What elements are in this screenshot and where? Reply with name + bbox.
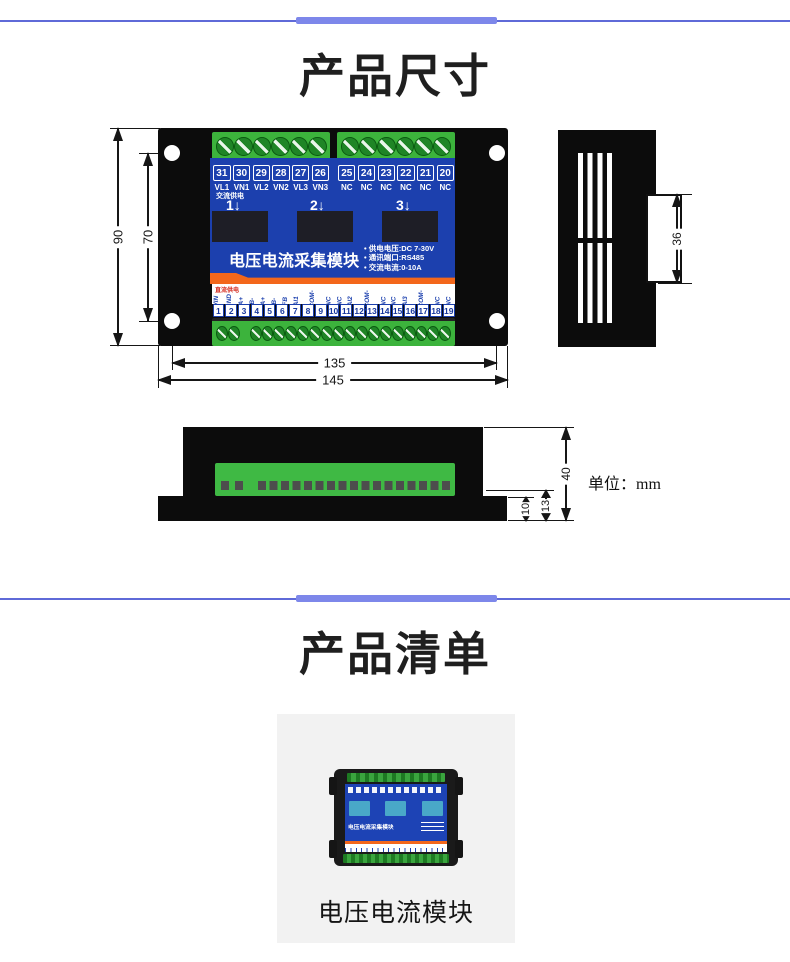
terminal-label-cell: NC bbox=[335, 286, 346, 304]
terminal-number: 30 bbox=[233, 165, 250, 181]
terminal-number: 16 bbox=[404, 304, 416, 317]
screw-icon bbox=[414, 137, 432, 156]
terminal-number: 22 bbox=[397, 165, 414, 181]
terminal-number: 31 bbox=[213, 165, 230, 181]
transformer-block bbox=[382, 211, 438, 242]
terminal-label-cell: ACOM- bbox=[411, 286, 433, 304]
terminal-number: 26 bbox=[312, 165, 329, 181]
terminal-number: 7 bbox=[289, 304, 301, 317]
terminal-number: 25 bbox=[338, 165, 355, 181]
screw-icon bbox=[309, 326, 321, 341]
terminal-number: 11 bbox=[340, 304, 352, 317]
terminal-number: 23 bbox=[378, 165, 395, 181]
mounting-ear bbox=[455, 777, 463, 795]
screw-icon bbox=[262, 326, 274, 341]
terminal-number: 15 bbox=[392, 304, 404, 317]
terminal-label-cell: VIN bbox=[212, 286, 223, 304]
terminal-number: 12 bbox=[353, 304, 365, 317]
top-terminal-labels: VL1VN1VL2VN2VL3VN3NCNCNCNCNCNC bbox=[212, 183, 455, 192]
terminal-label-cell: GND bbox=[223, 286, 237, 304]
section-divider-accent bbox=[296, 17, 497, 24]
dim-front-height: 40 bbox=[565, 427, 567, 521]
unit-label: 单位：mm bbox=[588, 470, 661, 494]
screw-icon bbox=[234, 137, 252, 156]
dim-label-70: 70 bbox=[141, 226, 156, 248]
screw-icon bbox=[392, 326, 404, 341]
screw-icon bbox=[433, 137, 451, 156]
mounting-hole bbox=[489, 313, 505, 329]
terminal-label-cell: ACOM- bbox=[357, 286, 379, 304]
device-front-view-flange bbox=[158, 496, 507, 521]
vent-slots bbox=[578, 153, 612, 238]
terminal-screws-top bbox=[216, 136, 451, 156]
photo-specs-lines bbox=[421, 822, 444, 833]
vent-slots bbox=[578, 243, 612, 323]
bottom-terminal-labels: VINGNDA+B-A+B-FBAI1ACOM-NCNCAI2ACOM-NCNC… bbox=[212, 286, 455, 304]
screw-icon bbox=[396, 137, 414, 156]
terminal-number: 9 bbox=[315, 304, 327, 317]
terminal-label-cell: AI2 bbox=[346, 286, 357, 304]
screw-icon bbox=[359, 137, 377, 156]
screw-icon bbox=[341, 137, 359, 156]
screw-icon bbox=[356, 326, 368, 341]
terminal-number: 6 bbox=[276, 304, 288, 317]
photo-terminal-strip-bottom bbox=[343, 854, 449, 863]
terminal-label-cell: A+ bbox=[259, 286, 270, 304]
terminal-label-cell: FB bbox=[281, 286, 292, 304]
terminal-screws-bottom bbox=[216, 324, 451, 342]
screw-icon bbox=[290, 137, 308, 156]
dim-label-135: 135 bbox=[318, 356, 352, 371]
terminal-label: NC bbox=[437, 183, 454, 192]
terminal-number: 24 bbox=[358, 165, 375, 181]
terminal-number: 4 bbox=[251, 304, 263, 317]
terminal-number: 19 bbox=[443, 304, 455, 317]
screw-icon bbox=[404, 326, 416, 341]
dim-width-inner: 135 bbox=[172, 362, 497, 364]
dim-height-inner: 70 bbox=[147, 153, 149, 321]
terminal-label-cell: B- bbox=[270, 286, 281, 304]
terminal-label-cell: AI3 bbox=[400, 286, 411, 304]
dim-label-10: 10 bbox=[520, 502, 532, 516]
photo-number-row bbox=[348, 787, 444, 793]
terminal-label-cell: NC bbox=[444, 286, 455, 304]
terminal-label: VL3 bbox=[292, 183, 309, 192]
photo-label-strip bbox=[345, 844, 447, 852]
top-terminal-numbers: 313029282726252423222120 bbox=[212, 165, 455, 181]
terminal-label-cell: B- bbox=[248, 286, 259, 304]
screw-icon bbox=[368, 326, 380, 341]
terminal-label-cell: NC bbox=[390, 286, 401, 304]
mounting-hole bbox=[164, 313, 180, 329]
screw-icon bbox=[380, 326, 392, 341]
section-title-dimensions: 产品尺寸 bbox=[0, 40, 790, 106]
mounting-ear bbox=[455, 840, 463, 858]
screw-icon bbox=[228, 326, 240, 341]
transformer-block bbox=[297, 211, 353, 242]
front-terminal-strip bbox=[215, 463, 455, 496]
mounting-hole bbox=[164, 145, 180, 161]
photo-module-title: 电压电流采集模块 bbox=[348, 822, 394, 831]
photo-transformer bbox=[349, 801, 370, 816]
section-divider-accent bbox=[296, 595, 497, 602]
terminal-label: VL2 bbox=[253, 183, 270, 192]
transformer-block bbox=[212, 211, 268, 242]
terminal-number: 17 bbox=[417, 304, 429, 317]
product-photo: 电压电流采集模块 bbox=[334, 769, 458, 866]
product-caption: 电压电流模块 bbox=[277, 893, 515, 929]
photo-transformer bbox=[385, 801, 406, 816]
terminal-label: NC bbox=[358, 183, 375, 192]
terminal-label: VN3 bbox=[312, 183, 329, 192]
terminal-number: 20 bbox=[437, 165, 454, 181]
terminal-number: 10 bbox=[328, 304, 340, 317]
screw-icon bbox=[427, 326, 439, 341]
mounting-ear bbox=[329, 840, 337, 858]
terminal-number: 14 bbox=[379, 304, 391, 317]
mounting-ear bbox=[329, 777, 337, 795]
screw-icon bbox=[439, 326, 451, 341]
screw-icon bbox=[333, 326, 345, 341]
spec-line: • 供电电压:DC 7-30V bbox=[364, 244, 434, 253]
screw-icon bbox=[377, 137, 395, 156]
terminal-label: NC bbox=[378, 183, 395, 192]
screw-icon bbox=[250, 326, 262, 341]
terminal-label: NC bbox=[417, 183, 434, 192]
photo-terminal-strip-top bbox=[347, 773, 445, 782]
dim-height-outer: 90 bbox=[117, 128, 119, 346]
terminal-number: 8 bbox=[302, 304, 314, 317]
device-side-view bbox=[558, 130, 656, 347]
screw-icon bbox=[216, 326, 228, 341]
screw-icon bbox=[344, 326, 356, 341]
screw-icon bbox=[321, 326, 333, 341]
screw-icon bbox=[308, 137, 326, 156]
terminal-label: NC bbox=[338, 183, 355, 192]
dim-side-clip: 36 bbox=[676, 194, 678, 283]
dim-label-36: 36 bbox=[670, 228, 684, 249]
terminal-number: 27 bbox=[292, 165, 309, 181]
dim-width-outer: 145 bbox=[158, 379, 508, 381]
screw-icon bbox=[253, 137, 271, 156]
terminal-number: 13 bbox=[366, 304, 378, 317]
screw-icon bbox=[297, 326, 309, 341]
terminal-number: 29 bbox=[253, 165, 270, 181]
terminal-number: 28 bbox=[272, 165, 289, 181]
terminal-label-cell: ACOM- bbox=[302, 286, 324, 304]
module-specs: • 供电电压:DC 7-30V• 通讯端口:RS485• 交流电流:0-10A bbox=[364, 244, 434, 272]
terminal-number: 18 bbox=[430, 304, 442, 317]
dim-label-40: 40 bbox=[559, 463, 573, 484]
screw-icon bbox=[285, 326, 297, 341]
terminal-label-cell: NC bbox=[324, 286, 335, 304]
screw-icon bbox=[273, 326, 285, 341]
dim-label-145: 145 bbox=[316, 373, 350, 388]
terminal-label-cell: AI1 bbox=[291, 286, 302, 304]
terminal-number: 3 bbox=[238, 304, 250, 317]
terminal-number: 1 bbox=[213, 304, 225, 317]
module-title: 电压电流采集模块 bbox=[229, 247, 369, 271]
dim-label-90: 90 bbox=[111, 226, 126, 248]
front-terminal-pins bbox=[258, 481, 452, 490]
page: 产品尺寸 90 70 313029282726252423222120 VL1V… bbox=[0, 0, 790, 962]
terminal-number: 21 bbox=[417, 165, 434, 181]
dim-front-base: 10 bbox=[525, 497, 527, 521]
bottom-terminal-numbers: 12345678910111213141516171819 bbox=[212, 304, 455, 317]
terminal-label: NC bbox=[397, 183, 414, 192]
spec-line: • 交流电流:0-10A bbox=[364, 263, 434, 272]
spec-line: • 通讯端口:RS485 bbox=[364, 253, 434, 262]
dim-front-step: 13 bbox=[545, 490, 547, 521]
front-terminal-pins bbox=[221, 481, 247, 490]
terminal-label-cell: A+ bbox=[237, 286, 248, 304]
photo-face-panel: 电压电流采集模块 bbox=[345, 784, 447, 841]
section-title-list: 产品清单 bbox=[0, 618, 790, 684]
dim-label-13: 13 bbox=[540, 498, 552, 512]
terminal-label-cell: NC bbox=[379, 286, 390, 304]
terminal-number: 2 bbox=[225, 304, 237, 317]
terminal-number: 5 bbox=[264, 304, 276, 317]
photo-transformer bbox=[422, 801, 443, 816]
mounting-hole bbox=[489, 145, 505, 161]
terminal-label-cell: NC bbox=[433, 286, 444, 304]
product-card: 电压电流采集模块 电压电流模块 bbox=[277, 714, 515, 943]
screw-icon bbox=[416, 326, 428, 341]
screw-icon bbox=[271, 137, 289, 156]
terminal-label: VN2 bbox=[272, 183, 289, 192]
screw-icon bbox=[216, 137, 234, 156]
